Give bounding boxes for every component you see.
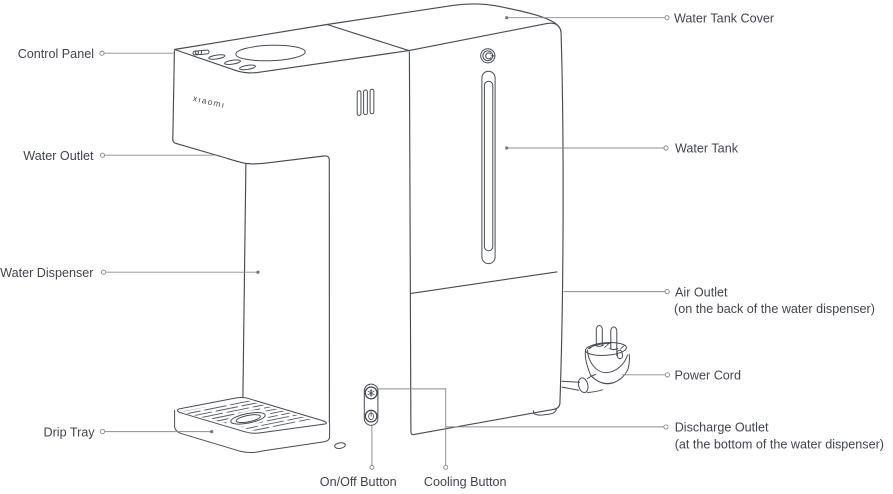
svg-text:Water Tank: Water Tank bbox=[675, 142, 739, 156]
svg-text:Cooling Button: Cooling Button bbox=[424, 475, 507, 489]
svg-text:Discharge Outlet: Discharge Outlet bbox=[675, 421, 769, 435]
svg-text:Water Tank Cover: Water Tank Cover bbox=[674, 11, 774, 25]
svg-text:Control Panel: Control Panel bbox=[18, 47, 94, 61]
svg-text:(at the bottom of the water di: (at the bottom of the water dispenser) bbox=[675, 437, 884, 451]
svg-text:Drip Tray: Drip Tray bbox=[44, 425, 96, 439]
svg-text:Air Outlet: Air Outlet bbox=[675, 285, 728, 299]
svg-text:Power Cord: Power Cord bbox=[675, 369, 742, 383]
svg-text:xıaomı: xıaomı bbox=[192, 93, 226, 110]
svg-text:Water Outlet: Water Outlet bbox=[23, 149, 94, 163]
svg-text:On/Off Button: On/Off Button bbox=[320, 475, 397, 489]
svg-text:Water Dispenser: Water Dispenser bbox=[0, 266, 93, 280]
svg-text:(on the back of the water disp: (on the back of the water dispenser) bbox=[674, 302, 875, 316]
